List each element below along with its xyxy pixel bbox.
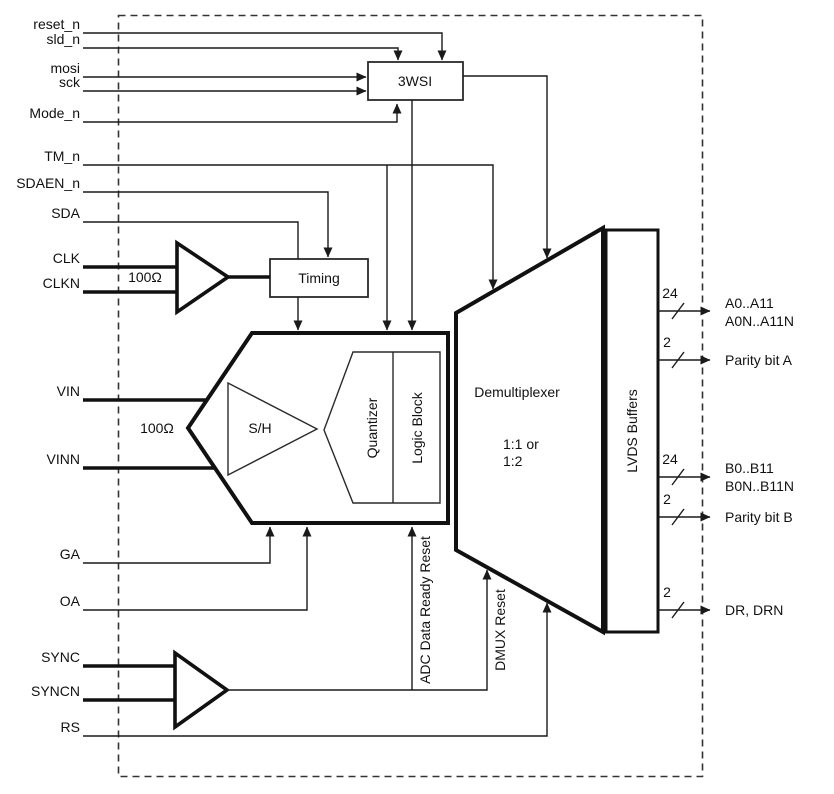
lvds-buffers-label: LVDS Buffers: [624, 389, 640, 473]
3wsi-label: 3WSI: [398, 73, 432, 89]
wire-mode-n: [83, 104, 397, 122]
wire-sld-n: [83, 48, 398, 60]
input-label-mode-n: Mode_n: [29, 105, 80, 121]
input-label-syncn: SYNCN: [31, 683, 80, 699]
input-label-sld-n: sld_n: [47, 31, 80, 47]
input-label-clk: CLK: [53, 250, 81, 266]
wire-sdaen-n: [83, 192, 328, 257]
sample-hold-label: S/H: [248, 420, 271, 436]
input-label-sdaen-n: SDAEN_n: [16, 175, 80, 191]
wire-rs: [83, 603, 547, 736]
output-label-a-line1: A0..A11: [725, 295, 774, 311]
input-label-ga: GA: [60, 546, 81, 562]
input-label-rs: RS: [61, 719, 80, 735]
input-label-clkn: CLKN: [43, 275, 80, 291]
vin-termination-label: 100Ω: [140, 420, 174, 436]
input-label-sda: SDA: [51, 205, 80, 221]
wire-ga: [83, 527, 270, 563]
input-label-reset-n: reset_n: [33, 16, 80, 32]
input-label-vinn: VINN: [47, 451, 80, 467]
wire-sync-buffer-to-dmux-reset: [227, 570, 487, 690]
output-label-parity-a: Parity bit A: [725, 352, 793, 368]
wire-oa: [83, 527, 307, 610]
output-label-parity-b: Parity bit B: [725, 509, 793, 525]
output-label-b-line1: B0..B11: [725, 460, 774, 476]
wire-3wsi-to-demux: [463, 76, 547, 258]
clk-input-buffer-triangle: [177, 243, 228, 312]
output-label-a-line2: A0N..A11N: [725, 313, 794, 329]
quantizer-label: Quantizer: [364, 397, 380, 458]
clk-termination-label: 100Ω: [128, 269, 162, 285]
wire-reset-n: [83, 33, 442, 60]
timing-label: Timing: [298, 270, 340, 286]
demultiplexer-label: Demultiplexer: [474, 384, 560, 400]
diagram-canvas: reset_n sld_n mosi sck Mode_n TM_n SDAEN…: [0, 0, 834, 794]
input-label-oa: OA: [60, 593, 81, 609]
bus-width-dr: 2: [663, 584, 671, 600]
bus-width-parity-b: 2: [663, 491, 671, 507]
input-label-vin: VIN: [57, 383, 80, 399]
demultiplexer-block: [456, 228, 603, 632]
bus-width-b: 24: [662, 451, 678, 467]
output-label-dr-drn: DR, DRN: [725, 602, 783, 618]
demux-mode-line2: 1:2: [503, 453, 523, 469]
input-label-tm-n: TM_n: [44, 148, 80, 164]
output-label-b-line2: B0N..B11N: [725, 478, 794, 494]
adc-block-diagram: reset_n sld_n mosi sck Mode_n TM_n SDAEN…: [0, 0, 834, 794]
dmux-reset-label: DMUX Reset: [492, 589, 508, 671]
bus-width-parity-a: 2: [663, 334, 671, 350]
logic-block-label: Logic Block: [409, 391, 425, 464]
input-label-sck: sck: [59, 74, 81, 90]
adc-data-ready-reset-label: ADC Data Ready Reset: [417, 536, 433, 684]
bus-width-a: 24: [662, 285, 678, 301]
input-label-sync: SYNC: [41, 649, 80, 665]
sync-input-buffer-triangle: [175, 653, 227, 727]
demux-mode-line1: 1:1 or: [503, 436, 539, 452]
